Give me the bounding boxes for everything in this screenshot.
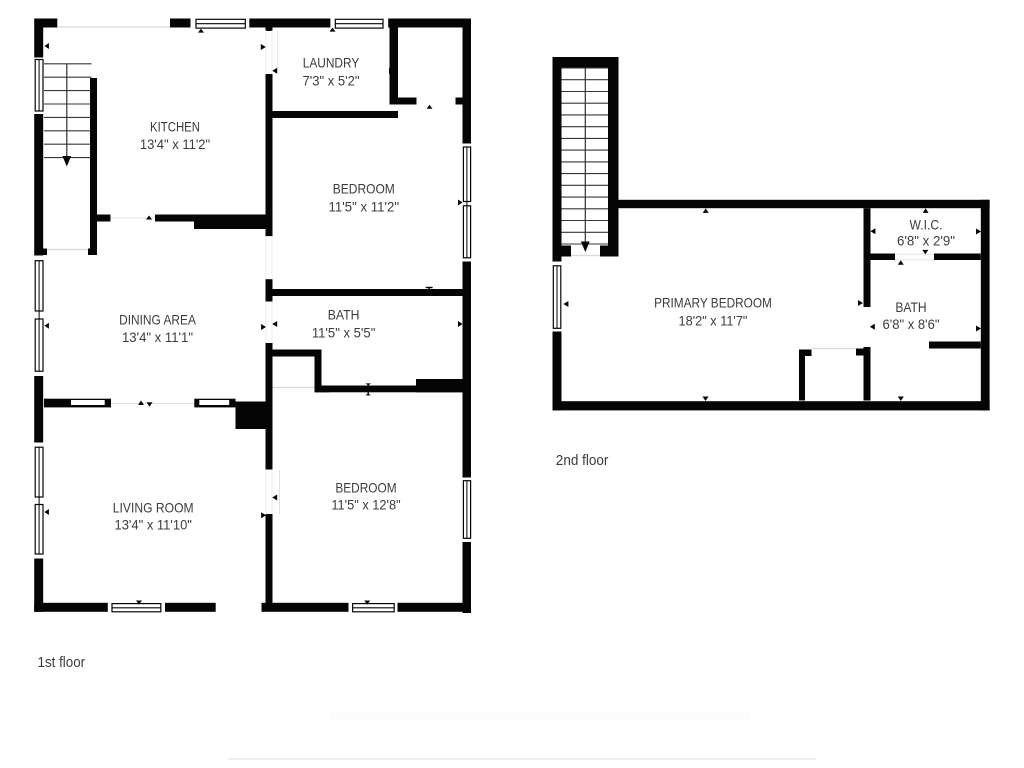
svg-text:11'5" x 5'5": 11'5" x 5'5": [312, 325, 376, 341]
svg-text:LIVING ROOM: LIVING ROOM: [113, 499, 194, 515]
svg-text:BATH: BATH: [328, 307, 360, 323]
svg-text:1st floor: 1st floor: [38, 654, 86, 671]
svg-text:2nd floor: 2nd floor: [556, 452, 609, 469]
svg-text:11'5" x 11'2": 11'5" x 11'2": [329, 199, 400, 215]
svg-text:LAUNDRY: LAUNDRY: [303, 55, 360, 71]
svg-text:18'2" x 11'7": 18'2" x 11'7": [679, 312, 748, 328]
svg-text:13'4" x 11'10": 13'4" x 11'10": [115, 517, 192, 533]
svg-text:11'5" x 12'8": 11'5" x 12'8": [331, 497, 400, 513]
svg-text:6'8" x 8'6": 6'8" x 8'6": [883, 316, 940, 332]
svg-text:KITCHEN: KITCHEN: [150, 119, 200, 135]
svg-text:BEDROOM: BEDROOM: [333, 181, 395, 197]
svg-text:BEDROOM: BEDROOM: [335, 479, 396, 495]
svg-text:BATH: BATH: [895, 299, 926, 315]
svg-text:DINING AREA: DINING AREA: [119, 312, 196, 328]
svg-text:13'4" x 11'1": 13'4" x 11'1": [122, 329, 193, 345]
svg-text:13'4" x 11'2": 13'4" x 11'2": [140, 136, 210, 152]
svg-text:PRIMARY BEDROOM: PRIMARY BEDROOM: [654, 295, 772, 311]
svg-text:W.I.C.: W.I.C.: [910, 216, 943, 232]
svg-text:7'3" x 5'2": 7'3" x 5'2": [303, 73, 360, 89]
svg-text:6'8" x 2'9": 6'8" x 2'9": [897, 232, 955, 248]
